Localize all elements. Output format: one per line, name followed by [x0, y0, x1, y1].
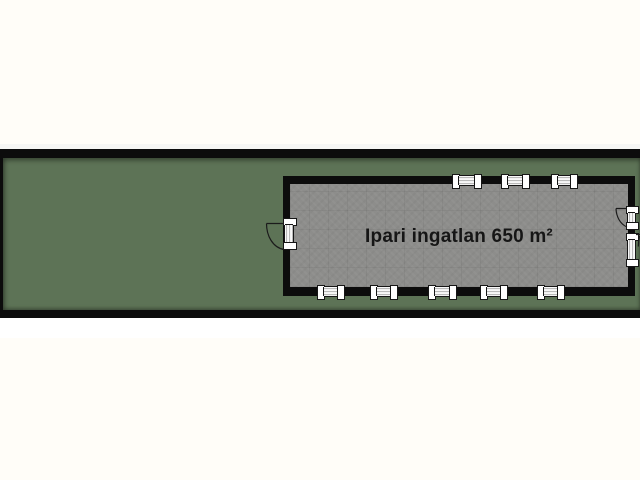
window-icon — [480, 286, 508, 297]
window-glass — [628, 239, 635, 261]
window-glass — [434, 287, 451, 296]
window-glass — [486, 287, 502, 296]
window-glass — [543, 287, 559, 296]
window-icon — [370, 286, 398, 297]
door-leaf — [628, 212, 635, 224]
page-shade-band-bottom — [0, 318, 640, 338]
window-icon — [317, 286, 345, 297]
floorplan-canvas: Ipari ingatlan 650 m² — [0, 0, 640, 480]
window-icon — [537, 286, 565, 297]
door-icon — [627, 206, 636, 230]
window-glass — [376, 287, 392, 296]
building-label: Ipari ingatlan 650 m² — [290, 184, 628, 287]
window-icon — [428, 286, 457, 297]
window-glass — [323, 287, 339, 296]
window-icon — [627, 233, 636, 267]
